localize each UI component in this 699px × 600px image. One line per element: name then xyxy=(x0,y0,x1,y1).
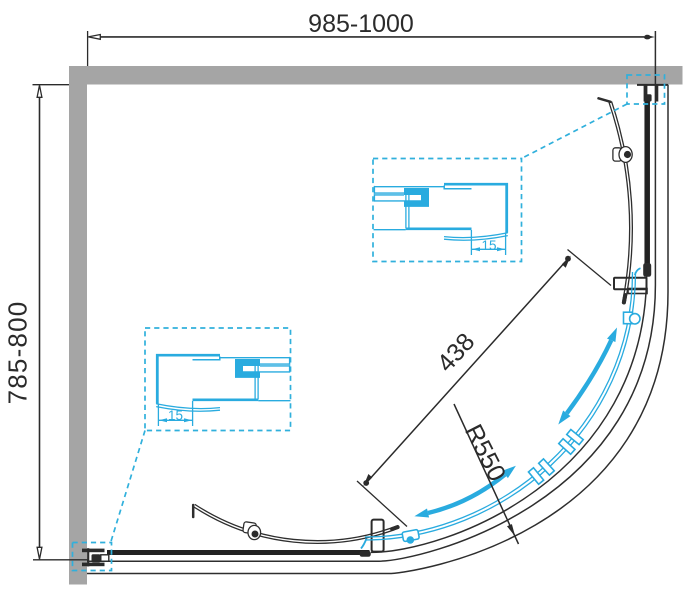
svg-text:15: 15 xyxy=(168,408,183,423)
svg-text:785-800: 785-800 xyxy=(3,301,33,405)
svg-text:15: 15 xyxy=(481,238,496,253)
svg-text:985-1000: 985-1000 xyxy=(308,10,414,38)
